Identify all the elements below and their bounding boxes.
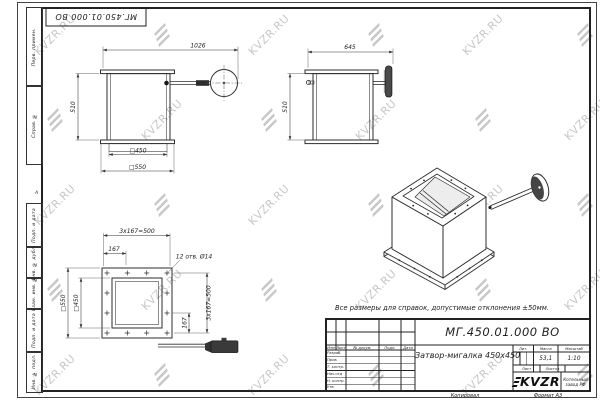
dim-plan-offset-right: 167 xyxy=(182,317,189,329)
company-logo: KVZR xyxy=(514,372,560,391)
header-mass: Масса xyxy=(534,345,559,352)
zone-marker: А xyxy=(35,191,38,196)
role-razrab: Разраб. xyxy=(327,350,345,357)
title-block-name: Затвор-мигалка 450x450 xyxy=(415,351,513,360)
front-view xyxy=(101,65,243,152)
margin-cell-perv-primen: Перв. примен. xyxy=(26,7,44,87)
side-view xyxy=(305,66,392,144)
role-utv: Утв. xyxy=(327,384,345,391)
dim-side-width: 645 xyxy=(344,44,356,51)
dim-plan-pitch-right: 3x167=500 xyxy=(206,285,213,320)
corner-stamp-designation: МГ.450.01.000 ВО xyxy=(46,8,146,26)
isometric-view xyxy=(384,168,552,290)
header-sign: Подп. xyxy=(379,345,401,350)
logo-text: KVZR xyxy=(520,374,560,389)
dim-plan-offset-top: 167 xyxy=(108,246,120,253)
margin-cell-inv-podl: Инв. № подл. xyxy=(26,351,44,393)
role-t-kontr: Т. контр. xyxy=(327,364,345,371)
dim-side-height: 510 xyxy=(282,101,289,113)
reference-note: Все размеры для справок, допустимые откл… xyxy=(322,304,562,312)
role-prov: Пров. xyxy=(327,357,345,364)
dim-plan-inner: □450 xyxy=(73,294,80,311)
copied-label: Копировал xyxy=(430,393,500,399)
dim-plan-pitch-top: 3x167=500 xyxy=(119,228,154,235)
header-lit: Лит. xyxy=(513,345,534,352)
dim-front-inner: □450 xyxy=(129,148,146,155)
header-sheets: Листов xyxy=(540,365,565,372)
bolt-holes xyxy=(105,271,170,336)
margin-cell-podp-data-1: Подп. и дата xyxy=(26,203,44,248)
margin-cell-vzam-inv: Взам. инв. № xyxy=(26,277,44,310)
side-view-dims: 645 510 xyxy=(282,44,393,140)
drawing-sheet: KVZR.RUKVZR.RUKVZR.RUKVZR.RUKVZR.RUKVZR.… xyxy=(0,0,600,400)
role-n-kontr: Н. контр. xyxy=(327,378,345,385)
margin-cell-podp-data-2: Подп. и дата xyxy=(26,308,44,353)
header-date: Дата xyxy=(401,345,415,350)
dim-front-outer: □550 xyxy=(129,164,146,171)
mass-value: 53,1 xyxy=(534,352,559,365)
flange-plan-view xyxy=(102,268,238,353)
header-sheet: Лист xyxy=(513,365,540,372)
holes-callout: 12 отв. Ø14 xyxy=(176,254,213,261)
front-view-dims: 1026 510 □450 □550 xyxy=(70,43,238,174)
margin-cell-inv-dubl: Инв. № дубл. xyxy=(26,246,44,279)
header-doc: № докум. xyxy=(346,345,379,350)
margin-cell-sprav-no: Справ. № xyxy=(26,85,44,165)
dim-plan-outer: □550 xyxy=(60,294,67,311)
company-name: Котельный завод РФ xyxy=(561,372,590,391)
dim-front-height: 510 xyxy=(70,101,77,113)
role-nach-otd: Нач.отд xyxy=(327,371,345,378)
format-label: Формат А3 xyxy=(518,393,578,399)
scale-value: 1:10 xyxy=(558,352,590,365)
title-block-designation: МГ.450.01.000 ВО xyxy=(415,319,590,345)
dim-front-width: 1026 xyxy=(190,43,205,50)
header-scale: Масштаб xyxy=(558,345,590,352)
flange-plan-dims: 3x167=500 167 12 отв. Ø14 □550 □450 3x16… xyxy=(60,228,213,338)
